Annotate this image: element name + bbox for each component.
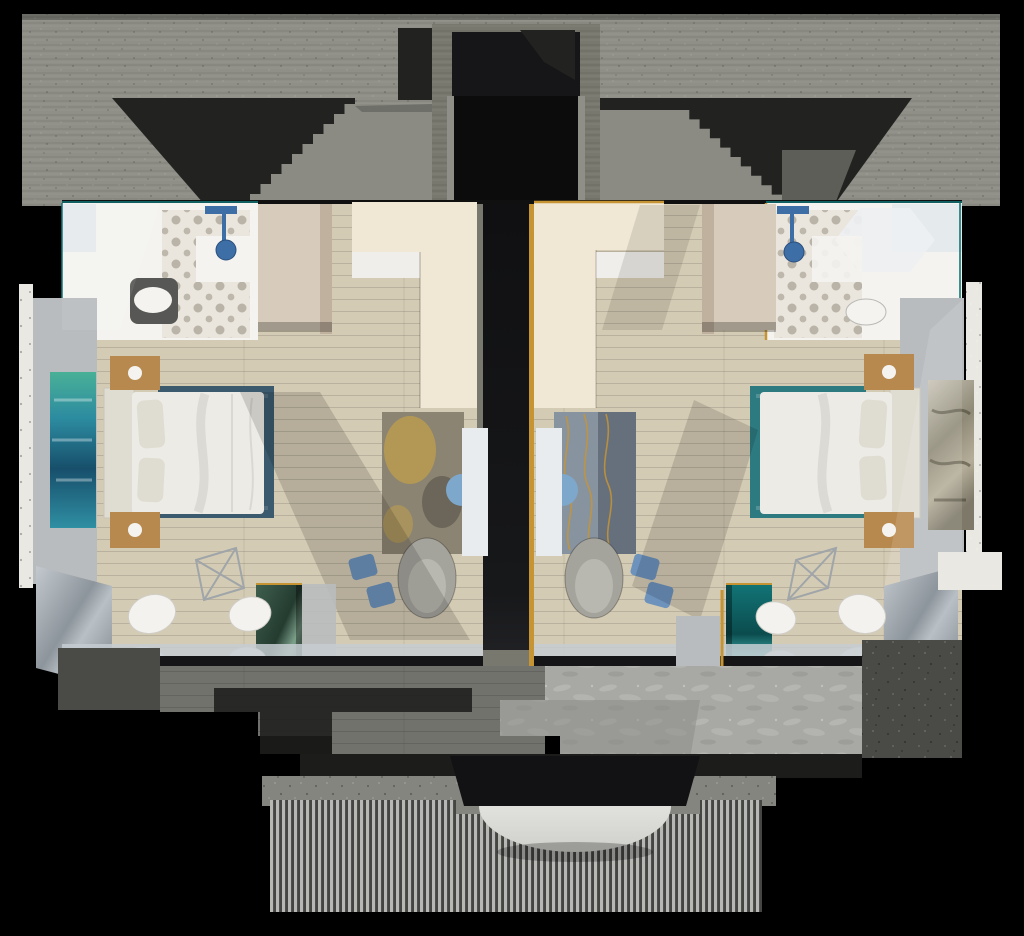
roof-slot-left	[398, 28, 432, 100]
desk-left-marble-top	[352, 252, 420, 278]
headboard-left	[104, 388, 134, 518]
floor-plan-render: Two-suite floor plan - 3D cutaway render	[0, 0, 1024, 936]
tv-panel-left	[462, 428, 488, 556]
deck-block-right-texture	[862, 640, 962, 758]
pillow-left-2	[137, 457, 165, 502]
wall-art-blue-green	[50, 372, 96, 528]
shower-rail-left	[205, 206, 237, 214]
pillow-right-1	[858, 399, 887, 449]
duvet-fold-left	[198, 394, 205, 512]
duvet-fold-right	[822, 394, 828, 512]
lounge-rug-left-gold-1	[384, 416, 436, 484]
toilet-left	[134, 287, 172, 313]
pillow-left-1	[136, 399, 165, 449]
wardrobe-right	[702, 204, 776, 334]
rain-shower-head-right	[784, 242, 804, 262]
wardrobe-left-shadow	[258, 322, 332, 332]
concrete-roof-structure	[22, 14, 1000, 206]
lamp-right-top	[882, 365, 896, 379]
roof-edge-shadow	[22, 14, 1000, 20]
outer-wall-left-speckle	[19, 284, 33, 588]
shower-stem-right	[790, 212, 794, 246]
wardrobe-left-body	[258, 204, 320, 330]
render-canvas: Two-suite floor plan - 3D cutaway render	[0, 0, 1024, 936]
shaft-mullion-right	[578, 96, 585, 204]
wardrobe-left	[258, 204, 332, 334]
deck-block-left	[58, 648, 160, 710]
wardrobe-right-side	[702, 204, 714, 334]
spine-dark-wall	[483, 204, 529, 690]
wardrobe-right-body	[714, 204, 776, 330]
lounge-rug-right-shade	[598, 412, 636, 554]
lamp-left-top	[128, 366, 142, 380]
pillow-right-2	[859, 455, 887, 500]
rain-shower-head-left	[216, 240, 236, 260]
armchair-right-seat	[575, 559, 613, 613]
terrazzo-corner-right	[938, 552, 1002, 590]
lamp-left-bottom	[128, 523, 142, 537]
tv-panel-right	[536, 428, 562, 556]
shaft-mullion-left	[447, 96, 454, 204]
disc-shadow	[497, 842, 653, 862]
bathroom-right-vanity-top	[812, 236, 862, 282]
shaft-void	[452, 96, 580, 204]
toilet-right	[846, 299, 886, 325]
wardrobe-right-shadow	[702, 322, 776, 332]
wardrobe-left-side	[320, 204, 332, 334]
dark-canopy	[450, 756, 700, 806]
